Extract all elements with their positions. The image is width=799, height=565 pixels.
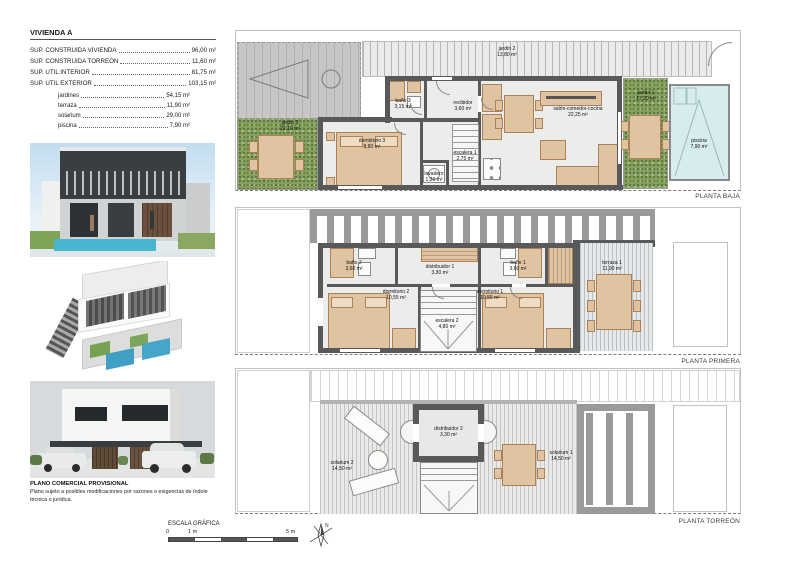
table-row: SUP. CONSTRUIDA VIVIENDA96,00 m² (30, 43, 216, 54)
door-opening (413, 424, 419, 442)
coffee-table (540, 140, 566, 160)
dotted-leader (92, 74, 190, 75)
row-label: SUP. UTIL INTERIOR (30, 69, 90, 76)
scale-tick-0: 0 (166, 529, 169, 535)
table-row: terraza11,90 m² (58, 99, 190, 109)
dotted-leader (81, 97, 164, 98)
figure (150, 211, 154, 229)
sofa (598, 144, 618, 186)
table-row: SUP. UTIL INTERIOR81,75 m² (30, 65, 216, 76)
counter-line (546, 96, 596, 99)
bed-dormitorio2 (328, 293, 390, 351)
shrub (30, 455, 42, 465)
chair (295, 141, 304, 153)
row-label: SUP. UTIL EXTERIOR (30, 80, 92, 87)
grass-patch (178, 233, 215, 249)
window-opening (338, 186, 382, 189)
chair (587, 300, 595, 312)
room-label-jardin2: jardín 213,80 m² (478, 46, 536, 59)
room-label-bano1: baño 13,60 m² (498, 260, 538, 273)
shaded-face (170, 389, 180, 447)
chair (535, 118, 543, 129)
area-subtable: jardines54,15 m² terraza11,90 m² solariu… (58, 89, 190, 129)
wood-deck-strip (421, 246, 478, 262)
pergola-slats (586, 413, 646, 505)
balcony-railing (66, 171, 180, 195)
staircase-steps (421, 463, 477, 483)
partition (327, 284, 573, 287)
room-label-dormitorio2: dormitorio 210,55 m² (370, 289, 422, 302)
render-rear-view (30, 381, 215, 478)
room-label-escalera2: escalera 24,80 m² (418, 318, 476, 331)
wood-cladding (142, 203, 172, 237)
table-row: piscina7,90 m² (58, 119, 190, 129)
chair (537, 468, 545, 479)
bed-dormitorio1 (482, 293, 544, 351)
chair (249, 141, 258, 153)
wall (318, 117, 392, 122)
sliding-door-opening (618, 112, 621, 164)
partition (545, 245, 548, 286)
partition (424, 79, 427, 119)
garden-table (629, 115, 661, 159)
pergola-louvres (310, 216, 655, 243)
row-label: SUP. CONSTRUIDA VIVIENDA (30, 47, 117, 54)
row-value: 96,00 m² (192, 47, 216, 54)
room-label-salon: salón-comedor-cocina22,25 m² (548, 106, 608, 119)
pool-projection-outline (673, 405, 727, 512)
staircase-run (421, 483, 477, 513)
wall (318, 117, 323, 190)
room-label-solarium1: solarium 114,50 m² (538, 450, 584, 463)
pergola-beam (310, 209, 655, 216)
room-label-terraza1: terraza 111,90 m² (590, 260, 634, 273)
table-row: jardines54,15 m² (58, 89, 190, 99)
void-garden-below (237, 370, 310, 512)
room-label-bano2: baño 23,60 m² (334, 260, 374, 273)
bath-cabinet (407, 81, 421, 93)
page-title: VIVIENDA A (30, 28, 216, 40)
pool-depth-lines (669, 84, 730, 181)
row-label: jardines (58, 93, 79, 99)
car-wheel (150, 464, 159, 473)
chair (633, 320, 641, 332)
chair (587, 320, 595, 332)
shrub (200, 453, 214, 464)
wall (318, 243, 580, 248)
wardrobe (548, 246, 573, 284)
room-label-jardin3: jardín 322,10 m² (264, 120, 316, 133)
pool-front (54, 239, 156, 251)
chair (633, 280, 641, 292)
sink (500, 248, 516, 259)
row-label: piscina (58, 123, 77, 129)
chair (587, 280, 595, 292)
shrub (118, 456, 128, 465)
window-opening (495, 349, 535, 352)
disclaimer-heading: PLANO COMERCIAL PROVISIONAL (30, 481, 220, 487)
sink (358, 248, 376, 259)
dotted-leader (79, 107, 165, 108)
scale-tick-1m: 1 m (188, 529, 197, 535)
partition (478, 245, 481, 286)
car-wheel (182, 464, 191, 473)
chair (295, 159, 304, 171)
room-label-solarium2: solarium 214,50 m² (318, 460, 366, 473)
solarium-table (502, 444, 536, 486)
plan-title-torreon: PLANTA TORREÓN (640, 518, 740, 525)
dotted-leader (83, 117, 165, 118)
room-label-lavadero: lavadero1,20 m² (414, 171, 454, 184)
table-row: SUP. CONSTRUIDA TORREÓN11,60 m² (30, 54, 216, 65)
plan-sheet: VIVIENDA A SUP. CONSTRUIDA VIVIENDA96,00… (0, 0, 799, 565)
scale-bar (168, 537, 298, 542)
window (122, 405, 168, 421)
dotted-leader (120, 63, 190, 64)
render-aerial-view (30, 261, 215, 378)
dotted-leader (94, 85, 186, 86)
scale-bar-title: ESCALA GRÁFICA (168, 521, 220, 527)
row-label: terraza (58, 103, 77, 109)
wall (573, 243, 580, 353)
room-label-bano3: baño 33,15 m² (384, 98, 422, 111)
row-label: SUP. CONSTRUIDA TORREÓN (30, 58, 118, 65)
partition (395, 245, 398, 286)
chair (249, 159, 258, 171)
room-label-jardin1: jardín 117,20 m² (626, 90, 666, 103)
room-label-distribuidor1: distribuidor 13,30 m² (412, 264, 468, 277)
chair (495, 100, 503, 111)
disclaimer-body: Plano sujeto a posibles modificaciones p… (30, 489, 208, 504)
row-value: 11,90 m² (167, 103, 190, 109)
car-wheel (72, 464, 80, 472)
table-row: solarium29,00 m² (58, 109, 190, 119)
window (108, 203, 134, 237)
dining-table (504, 95, 534, 133)
chair (621, 139, 629, 150)
dotted-leader (119, 52, 190, 53)
table-row: SUP. UTIL EXTERIOR103,15 m² (30, 76, 216, 87)
scale-tick-5m: 5 m (286, 529, 295, 535)
roof-below-hatch (310, 370, 740, 402)
row-value: 11,60 m² (192, 58, 216, 65)
round-table (368, 450, 388, 470)
window-opening (340, 349, 380, 352)
row-value: 54,15 m² (166, 93, 190, 99)
room-label-distribuidor2: distribuidor 23,30 m² (420, 426, 477, 439)
chair (621, 121, 629, 132)
garden-table (258, 135, 294, 179)
room-label-recibidor: recibidor3,60 m² (440, 100, 486, 113)
row-label: solarium (58, 113, 81, 119)
room-label-dormitorio1: dormitorio 110,55 m² (464, 289, 516, 302)
room-label-escalera1: escalera 12,75 m² (444, 150, 486, 163)
partition (385, 118, 481, 122)
entrance-opening (432, 77, 452, 80)
room-label-piscina: piscina7,90 m² (676, 138, 722, 151)
plan-title-baja: PLANTA BAJA (640, 193, 740, 200)
pool-projection-outline (673, 242, 728, 347)
chair (495, 118, 503, 129)
north-arrow-icon: N (306, 520, 336, 550)
window (75, 407, 107, 421)
plan-title-primera: PLANTA PRIMERA (640, 358, 740, 365)
void-garden-below (237, 209, 310, 353)
car-wheel (44, 464, 52, 472)
terrace-table (596, 274, 632, 330)
garden-jardin2-hatch (362, 41, 712, 77)
chair (494, 450, 502, 461)
nightstand (326, 132, 335, 141)
room-label-dormitorio3: dormitorio 38,80 m² (344, 138, 400, 151)
row-value: 103,15 m² (188, 80, 216, 87)
driveway-markings (243, 52, 343, 110)
dotted-leader (79, 127, 168, 128)
row-value: 81,75 m² (192, 69, 216, 76)
row-value: 7,90 m² (170, 123, 190, 129)
north-label: N (325, 523, 329, 529)
chair (633, 300, 641, 312)
render-front-elevation (30, 143, 215, 257)
figure (90, 215, 94, 231)
row-value: 29,00 m² (166, 113, 190, 119)
window-opening (318, 298, 323, 326)
wood-cladding (92, 447, 118, 469)
area-table: SUP. CONSTRUIDA VIVIENDA96,00 m² SUP. CO… (30, 43, 216, 87)
wall (385, 76, 622, 81)
chair (494, 468, 502, 479)
